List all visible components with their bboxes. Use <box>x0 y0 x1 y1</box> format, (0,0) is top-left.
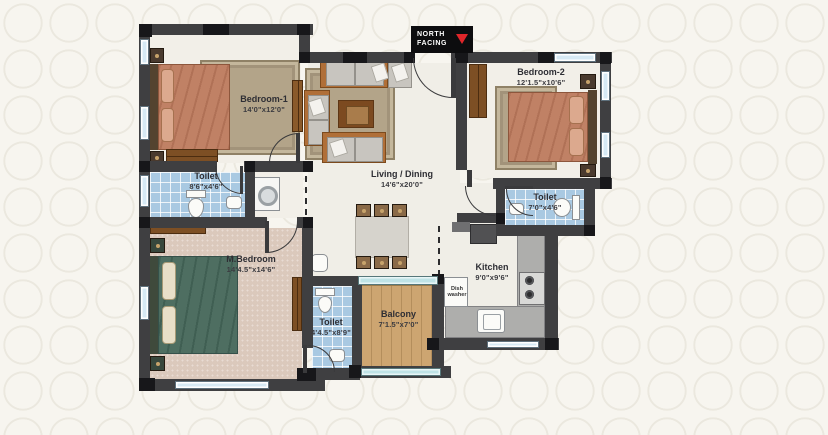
bedroom2-door <box>467 170 472 187</box>
toilet2-dims: 7'0"x4'6" <box>505 203 585 213</box>
wall-corner <box>139 161 150 172</box>
sofa-bottom <box>322 132 386 163</box>
wall-corner <box>496 213 505 224</box>
bedroom1-window <box>140 106 149 140</box>
master-window-bottom <box>175 381 269 389</box>
washing-machine-icon <box>252 177 280 211</box>
bedroom1-pillow <box>161 69 174 103</box>
dishwasher-label: Dish washer <box>446 286 468 298</box>
bedroom1-dims: 14'0"x12'0" <box>214 105 314 115</box>
master-side-table <box>150 238 165 253</box>
bedroom2-wardrobe <box>469 64 487 118</box>
sink-basin <box>483 314 501 330</box>
wall-corner <box>245 161 255 172</box>
bedroom1-window <box>140 39 149 65</box>
opening-dashed-line <box>305 165 307 215</box>
wall-corner <box>303 161 313 172</box>
wall-corner <box>303 217 313 228</box>
wall-segment <box>343 52 367 63</box>
dining-chair <box>392 256 407 269</box>
bedroom2-window-right <box>601 71 610 101</box>
north-line2: FACING <box>417 39 447 48</box>
wall-corner <box>545 338 558 350</box>
master-bedroom-dims: 14'4.5"x14'6" <box>201 265 301 275</box>
bedroom1-side-table <box>150 48 164 63</box>
bedroom1-name: Bedroom-1 <box>214 94 314 105</box>
toilet1-sink-icon <box>226 196 242 209</box>
kitchen-window <box>487 341 539 348</box>
wall-kitchen-right <box>545 225 558 350</box>
wall-corner <box>600 52 611 64</box>
master-bedroom-label: M.Bedroom 14'4.5"x14'6" <box>201 254 301 275</box>
bedroom2-window-top <box>554 53 596 62</box>
wall-corner <box>584 225 595 236</box>
wall-segment <box>203 24 229 35</box>
master-toilet-door <box>303 345 307 373</box>
wall-bedroom2-left <box>456 52 467 170</box>
bedroom1-label: Bedroom-1 14'0"x12'0" <box>214 94 314 115</box>
master-toilet-dims: 4'4.5"x8'9" <box>301 328 361 338</box>
living-dining-name: Living / Dining <box>352 169 452 180</box>
master-bedroom-name: M.Bedroom <box>201 254 301 265</box>
bedroom1-pillow <box>161 108 174 142</box>
master-window-left <box>140 286 149 320</box>
toilet2-label: Toilet 7'0"x4'6" <box>505 192 585 213</box>
bedroom2-window-right <box>601 132 610 158</box>
wall-corner <box>455 52 468 63</box>
wall-corner <box>299 52 310 63</box>
master-bed-headboard <box>150 256 158 354</box>
balcony-glass-door <box>358 276 438 285</box>
north-line1: NORTH <box>417 30 447 39</box>
wall-corner <box>600 177 611 189</box>
wash-basin-icon <box>311 254 328 272</box>
toilet1-name: Toilet <box>166 171 246 182</box>
master-toilet-wc-tank <box>315 288 335 296</box>
dining-chair <box>356 256 371 269</box>
wall-corner <box>297 24 310 35</box>
north-facing-badge: NORTH FACING <box>411 26 473 53</box>
wall-left-outer <box>139 24 150 391</box>
wall-master-top-left <box>139 217 267 228</box>
kitchen-sink-icon <box>477 309 505 333</box>
fridge-icon <box>470 224 497 244</box>
sofa-cushion <box>326 61 355 86</box>
dining-chair <box>392 204 407 217</box>
north-facing-text: NORTH FACING <box>417 30 447 48</box>
coffee-table <box>338 100 374 128</box>
bedroom2-label: Bedroom-2 12'1.5"x10'6" <box>491 67 591 88</box>
dining-chair <box>356 204 371 217</box>
wall-corner <box>139 217 150 228</box>
bedroom2-side-table <box>580 164 596 177</box>
kitchen-dims: 9'0"x9'6" <box>442 273 542 283</box>
balcony-name: Balcony <box>356 309 441 320</box>
bedroom2-pillow <box>569 96 584 124</box>
wall-corner <box>139 378 155 391</box>
wall-segment <box>538 52 554 63</box>
sofa-cushion <box>355 137 383 162</box>
toilet1-label: Toilet 8'6"x4'6" <box>166 171 246 192</box>
wall-corner <box>349 365 361 378</box>
master-toilet-name: Toilet <box>301 317 361 328</box>
balcony-label: Balcony 7'1.5"x7'0" <box>356 309 441 330</box>
floor-plan: Dish washer <box>0 0 828 435</box>
bedroom2-bed-headboard <box>588 90 597 164</box>
living-dining-dims: 14'6"x20'0" <box>352 180 452 190</box>
dining-chair <box>374 204 389 217</box>
balcony-dims: 7'1.5"x7'0" <box>356 320 441 330</box>
living-dining-label: Living / Dining 14'6"x20'0" <box>352 169 452 190</box>
burner-icon <box>525 290 534 299</box>
north-arrow-icon <box>456 34 468 44</box>
toilet1-dims: 8'6"x4'6" <box>166 182 246 192</box>
master-bed-pillow <box>162 306 176 344</box>
bedroom2-name: Bedroom-2 <box>491 67 591 78</box>
dining-chair <box>374 256 389 269</box>
wall-corner <box>139 24 152 37</box>
opening-dashed-line <box>438 226 440 276</box>
coffee-table-tray <box>346 106 369 125</box>
wall-kitchen-step <box>452 222 470 232</box>
bedroom2-dims: 12'1.5"x10'6" <box>491 78 591 88</box>
balcony-railing <box>361 368 441 376</box>
master-toilet-label: Toilet 4'4.5"x8'9" <box>301 317 361 338</box>
armchair-pillow <box>391 62 410 82</box>
toilet1-window <box>140 175 149 207</box>
wall-corner <box>427 338 439 350</box>
bedroom2-pillow <box>569 128 584 156</box>
master-side-table <box>150 356 165 371</box>
master-bed-pillow <box>162 262 176 300</box>
kitchen-name: Kitchen <box>442 262 542 273</box>
bedroom1-bed-headboard <box>150 64 158 150</box>
kitchen-label: Kitchen 9'0"x9'6" <box>442 262 542 283</box>
dining-table <box>355 216 409 258</box>
toilet2-name: Toilet <box>505 192 585 203</box>
